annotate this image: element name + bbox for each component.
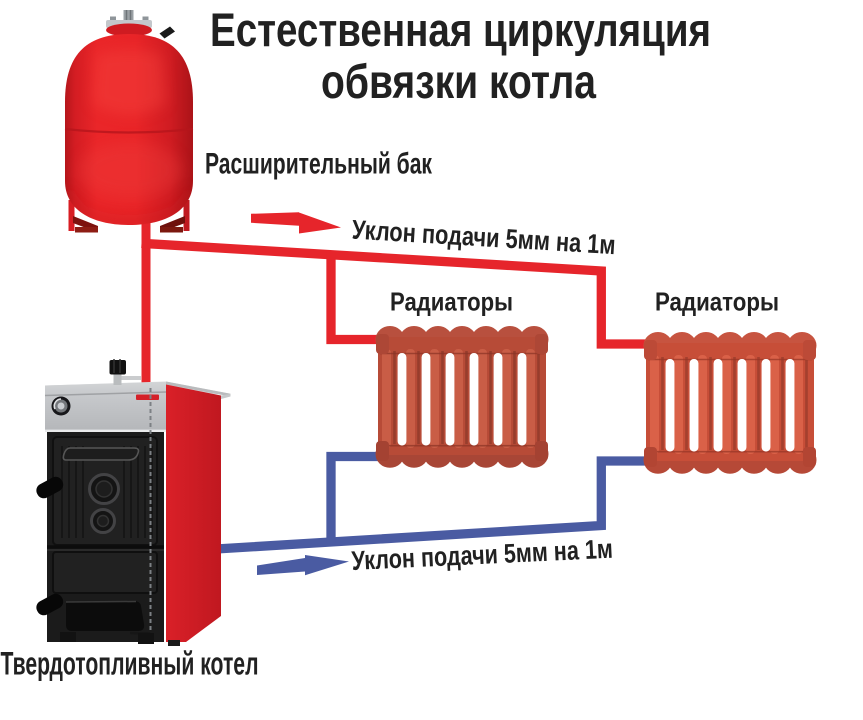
svg-text:обвязки котла: обвязки котла xyxy=(321,56,596,109)
svg-text:Расширительный бак: Расширительный бак xyxy=(205,148,432,181)
svg-text:Твердотопливный котел: Твердотопливный котел xyxy=(1,646,259,682)
svg-text:Радиаторы: Радиаторы xyxy=(655,287,779,317)
svg-text:Естественная циркуляция: Естественная циркуляция xyxy=(210,3,711,56)
svg-text:Радиаторы: Радиаторы xyxy=(390,287,513,317)
